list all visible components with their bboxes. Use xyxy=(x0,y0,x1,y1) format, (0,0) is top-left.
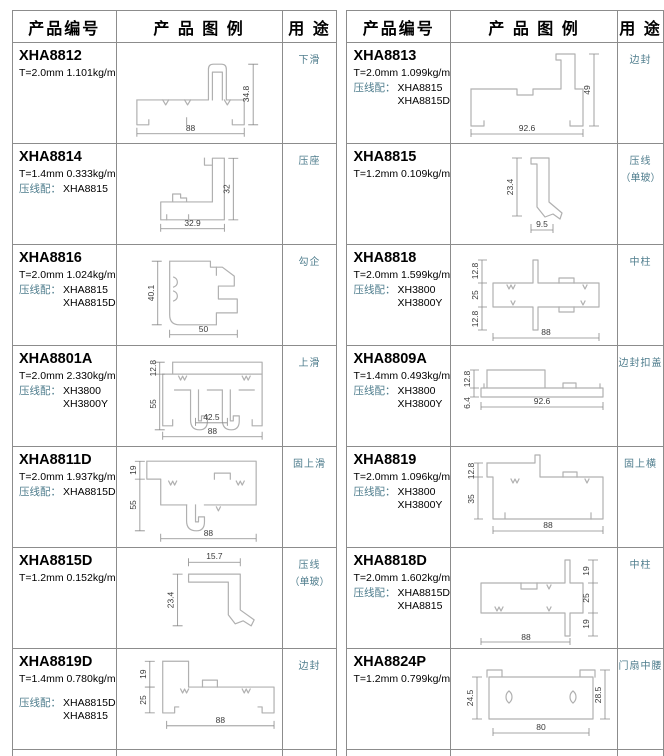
profile-outline xyxy=(471,54,583,126)
product-info-cell: XHA8801A T=2.0mm 2.330kg/m 压线配： XH3800XH… xyxy=(13,346,117,447)
catalog-sheet: 产品编号 产 品 图 例 用 途 XHA8812 T=2.0mm 1.101kg… xyxy=(0,0,664,756)
dim-height: 40.1 xyxy=(145,284,155,301)
figure-cell: 12.8 35 88 xyxy=(451,447,618,548)
dim-d2: 55 xyxy=(127,500,137,510)
product-row: XHA8813 T=2.0mm 1.099kg/m 压线配： XHA8815XH… xyxy=(347,43,664,144)
use-text-2: （单玻） xyxy=(618,169,663,184)
figure-cell: 88 34.8 xyxy=(116,43,282,144)
match-label: 压线配： xyxy=(19,697,61,724)
product-row: XHA8816 T=2.0mm 1.024kg/m 压线配： XHA8815XH… xyxy=(13,245,337,346)
figure-cell: 32 32.9 xyxy=(116,144,282,245)
dim-d2: 6.4 xyxy=(462,397,472,409)
dim-width: 88 xyxy=(185,123,195,133)
product-spec: T=2.0mm 1.602kg/m xyxy=(347,570,450,584)
profile-drawing: 12.8 35 88 xyxy=(451,447,616,546)
match-info xyxy=(13,79,116,82)
use-text: 压座 xyxy=(283,144,337,169)
match-code-2: XHA8815D xyxy=(397,95,450,109)
dim-d2: 25 xyxy=(581,593,591,603)
match-code-1: XHA8815 xyxy=(63,284,116,298)
profile-detail xyxy=(168,481,244,531)
match-code-2: XH3800Y xyxy=(397,297,442,311)
product-spec: T=2.0mm 1.099kg/m xyxy=(347,65,450,79)
match-info: 压线配： XH3800XH3800Y xyxy=(347,483,450,513)
match-label: 压线配： xyxy=(353,385,395,412)
next-row-stub xyxy=(13,750,337,756)
product-spec: T=2.0mm 2.330kg/m xyxy=(13,368,116,382)
dim-d2: 28.5 xyxy=(593,686,603,703)
match-info xyxy=(347,180,450,183)
product-code: XHA8813 xyxy=(347,43,450,65)
figure-cell: 23.4 9.5 xyxy=(451,144,618,245)
figure-cell: 92.6 49 xyxy=(451,43,618,144)
product-row: XHA8819D T=1.4mm 0.780kg/m 压线配： XHA8815D… xyxy=(13,649,337,750)
match-info: 压线配： XHA8815XHA8815D xyxy=(347,79,450,109)
product-info-cell: XHA8824P T=1.2mm 0.799kg/m xyxy=(347,649,451,750)
match-info: 压线配： XHA8815DXHA8815 xyxy=(13,685,116,724)
product-info-cell: XHA8815 T=1.2mm 0.109kg/m xyxy=(347,144,451,245)
use-text: 压线 xyxy=(283,548,337,573)
match-code-1: XHA8815D xyxy=(63,697,116,711)
dim-d2: 23.4 xyxy=(165,591,175,608)
dimension-line xyxy=(470,388,479,397)
profile-drawing: 15.7 23.4 xyxy=(117,548,281,647)
use-cell: 中柱 xyxy=(618,245,664,346)
match-info: 压线配： XH3800XH3800Y xyxy=(347,281,450,311)
use-cell: 边封 xyxy=(618,43,664,144)
profile-drawing: 19 25 19 88 xyxy=(451,548,616,647)
match-info: 压线配： XH3800XH3800Y xyxy=(347,382,450,412)
use-cell: 边封扣盖 xyxy=(618,346,664,447)
profile-outline xyxy=(493,260,599,330)
product-info-cell: XHA8819 T=2.0mm 1.096kg/m 压线配： XH3800XH3… xyxy=(347,447,451,548)
dim-height: 34.8 xyxy=(241,85,251,102)
product-spec: T=1.4mm 0.333kg/m xyxy=(13,166,116,180)
profile-detail xyxy=(484,383,600,388)
match-code-1: XH3800 xyxy=(63,385,108,399)
column-header-code: 产品编号 xyxy=(347,11,451,43)
header-row: 产品编号 产 品 图 例 用 途 xyxy=(347,11,664,43)
use-cell: 边封 xyxy=(282,649,337,750)
product-info-cell: XHA8813 T=2.0mm 1.099kg/m 压线配： XHA8815XH… xyxy=(347,43,451,144)
use-text: 中柱 xyxy=(618,245,663,270)
product-row: XHA8818D T=2.0mm 1.602kg/m 压线配： XHA8815D… xyxy=(347,548,664,649)
dim-width: 88 xyxy=(203,528,213,538)
use-cell: 勾企 xyxy=(282,245,337,346)
column-header-code: 产品编号 xyxy=(13,11,117,43)
match-code-1: XHA8815D xyxy=(397,587,450,601)
match-code-2: XH3800Y xyxy=(397,499,442,513)
use-cell: 压线 （单玻） xyxy=(282,548,337,649)
product-row: XHA8824P T=1.2mm 0.799kg/m 24.5 28.5 80 xyxy=(347,649,664,750)
use-cell: 下滑 xyxy=(282,43,337,144)
dim-width: 80 xyxy=(536,722,546,732)
match-info: 压线配： XHA8815D xyxy=(13,483,116,500)
dim-height: 32 xyxy=(221,184,231,194)
product-info-cell: XHA8818D T=2.0mm 1.602kg/m 压线配： XHA8815D… xyxy=(347,548,451,649)
match-label: 压线配： xyxy=(19,284,61,311)
product-code: XHA8816 xyxy=(13,245,116,267)
figure-cell: 19 25 88 xyxy=(116,649,282,750)
dim-d3: 12.8 xyxy=(470,310,480,327)
use-cell: 中柱 xyxy=(618,548,664,649)
figure-cell: 12.8 55 42.5 88 xyxy=(116,346,282,447)
profile-outline xyxy=(481,370,603,397)
product-code: XHA8809A xyxy=(347,346,450,368)
use-cell: 固上横 xyxy=(618,447,664,548)
product-row: XHA8818 T=2.0mm 1.599kg/m 压线配： XH3800XH3… xyxy=(347,245,664,346)
dim-d1: 23.4 xyxy=(505,178,515,195)
product-info-cell: XHA8815D T=1.2mm 0.152kg/m xyxy=(13,548,117,649)
dim-height: 49 xyxy=(582,85,592,95)
use-text: 中柱 xyxy=(618,548,663,573)
profile-outline xyxy=(487,455,603,519)
match-label: 压线配： xyxy=(19,183,61,197)
dim-d1: 12.8 xyxy=(466,462,476,479)
use-text: 勾企 xyxy=(283,245,337,270)
match-code-1: XH3800 xyxy=(397,284,442,298)
product-spec: T=1.2mm 0.109kg/m xyxy=(347,166,450,180)
next-row-stub xyxy=(347,750,664,756)
column-header-figure: 产 品 图 例 xyxy=(116,11,282,43)
match-code-1: XH3800 xyxy=(397,486,442,500)
dim-d1: 12.8 xyxy=(470,262,480,279)
dim-width: 92.6 xyxy=(534,396,551,406)
match-code-2: XHA8815 xyxy=(397,600,450,614)
match-label: 压线配： xyxy=(19,385,61,412)
product-row: XHA8809A T=1.4mm 0.493kg/m 压线配： XH3800XH… xyxy=(347,346,664,447)
dim-d3: 42.5 xyxy=(203,412,220,422)
product-code: XHA8814 xyxy=(13,144,116,166)
use-text-2: （单玻） xyxy=(283,573,337,588)
dim-width: 88 xyxy=(541,327,551,337)
dim-width: 88 xyxy=(207,426,217,436)
profile-drawing: 23.4 9.5 xyxy=(451,144,616,243)
left-product-table: 产品编号 产 品 图 例 用 途 XHA8812 T=2.0mm 1.101kg… xyxy=(12,10,337,756)
use-text: 边封扣盖 xyxy=(618,346,663,371)
profile-detail xyxy=(506,691,576,703)
use-text: 门扇中腰 xyxy=(618,649,663,674)
match-info: 压线配： XH3800XH3800Y xyxy=(13,382,116,412)
use-text: 固上滑 xyxy=(283,447,337,472)
profile-detail xyxy=(495,583,551,611)
product-spec: T=1.4mm 0.493kg/m xyxy=(347,368,450,382)
profile-drawing: 32 32.9 xyxy=(117,144,281,243)
profile-drawing: 12.8 55 42.5 88 xyxy=(117,346,281,445)
match-code-2: XH3800Y xyxy=(397,398,442,412)
figure-cell: 15.7 23.4 xyxy=(116,548,282,649)
product-spec: T=2.0mm 1.024kg/m xyxy=(13,267,116,281)
use-text: 边封 xyxy=(618,43,663,68)
use-cell: 上滑 xyxy=(282,346,337,447)
use-cell: 固上滑 xyxy=(282,447,337,548)
match-label: 压线配： xyxy=(353,587,395,614)
dim-width: 32.9 xyxy=(184,218,201,228)
profile-drawing: 92.6 49 xyxy=(451,43,616,142)
dim-width: 88 xyxy=(543,520,553,530)
use-cell: 压线 （单玻） xyxy=(618,144,664,245)
match-info: 压线配： XHA8815XHA8815D xyxy=(13,281,116,311)
match-code-2: XH3800Y xyxy=(63,398,108,412)
dim-d1: 12.8 xyxy=(462,370,472,387)
right-product-table: 产品编号 产 品 图 例 用 途 XHA8813 T=2.0mm 1.099kg… xyxy=(346,10,664,756)
column-header-use: 用 途 xyxy=(282,11,337,43)
profile-detail xyxy=(511,472,591,519)
product-code: XHA8801A xyxy=(13,346,116,368)
dim-d2: 25 xyxy=(137,695,147,705)
dim-d1: 19 xyxy=(127,465,137,475)
product-spec: T=2.0mm 1.101kg/m xyxy=(13,65,116,79)
product-spec: T=1.4mm 0.780kg/m xyxy=(13,671,116,685)
figure-cell: 12.8 6.4 92.6 xyxy=(451,346,618,447)
profile-outline xyxy=(481,560,583,636)
use-cell: 压座 xyxy=(282,144,337,245)
use-cell: 门扇中腰 xyxy=(618,649,664,750)
product-info-cell: XHA8819D T=1.4mm 0.780kg/m 压线配： XHA8815D… xyxy=(13,649,117,750)
product-row: XHA8801A T=2.0mm 2.330kg/m 压线配： XH3800XH… xyxy=(13,346,337,447)
match-info xyxy=(347,685,450,688)
match-label: 压线配： xyxy=(353,82,395,109)
match-code-2: XHA8815D xyxy=(63,297,116,311)
profile-detail xyxy=(166,158,212,220)
dim-d2: 25 xyxy=(470,290,480,300)
dim-width: 88 xyxy=(521,632,531,642)
product-info-cell: XHA8814 T=1.4mm 0.333kg/m 压线配： XHA8815 xyxy=(13,144,117,245)
product-row: XHA8815 T=1.2mm 0.109kg/m 23.4 9.5 压线 xyxy=(347,144,664,245)
product-code: XHA8815 xyxy=(347,144,450,166)
dim-width: 88 xyxy=(215,715,225,725)
product-info-cell: XHA8812 T=2.0mm 1.101kg/m xyxy=(13,43,117,144)
profile-drawing: 12.8 25 12.8 88 xyxy=(451,245,616,344)
product-code: XHA8818D xyxy=(347,548,450,570)
match-code-2: XHA8815 xyxy=(63,710,116,724)
dim-d2: 35 xyxy=(466,494,476,504)
product-row: XHA8812 T=2.0mm 1.101kg/m 88 34.8 xyxy=(13,43,337,144)
product-info-cell: XHA8816 T=2.0mm 1.024kg/m 压线配： XHA8815XH… xyxy=(13,245,117,346)
profile-drawing: 24.5 28.5 80 xyxy=(451,649,616,748)
product-code: XHA8819 xyxy=(347,447,450,469)
product-code: XHA8815D xyxy=(13,548,116,570)
product-code: XHA8818 xyxy=(347,245,450,267)
product-spec: T=2.0mm 1.096kg/m xyxy=(347,469,450,483)
dim-d1: 12.8 xyxy=(147,360,157,377)
profile-drawing: 19 25 88 xyxy=(117,649,281,748)
match-label: 压线配： xyxy=(353,486,395,513)
product-spec: T=2.0mm 1.937kg/m xyxy=(13,469,116,483)
dim-width: 50 xyxy=(198,324,208,334)
use-text: 下滑 xyxy=(283,43,337,68)
use-text: 固上横 xyxy=(618,447,663,472)
match-info xyxy=(13,584,116,587)
match-info: 压线配： XHA8815DXHA8815 xyxy=(347,584,450,614)
product-row: XHA8819 T=2.0mm 1.096kg/m 压线配： XH3800XH3… xyxy=(347,447,664,548)
product-info-cell: XHA8809A T=1.4mm 0.493kg/m 压线配： XH3800XH… xyxy=(347,346,451,447)
column-header-figure: 产 品 图 例 xyxy=(451,11,618,43)
product-code: XHA8812 xyxy=(13,43,116,65)
profile-drawing: 19 55 88 xyxy=(117,447,281,546)
profile-drawing: 88 34.8 xyxy=(117,43,281,142)
dim-d1: 19 xyxy=(137,669,147,679)
product-code: XHA8811D xyxy=(13,447,116,469)
dim-d2: 9.5 xyxy=(536,219,548,229)
match-code-1: XHA8815 xyxy=(397,82,450,96)
dim-width: 92.6 xyxy=(519,123,536,133)
figure-cell: 12.8 25 12.8 88 xyxy=(451,245,618,346)
profile-outline xyxy=(160,158,224,220)
profile-outline xyxy=(162,661,273,713)
profile-detail xyxy=(173,267,216,301)
figure-cell: 19 25 19 88 xyxy=(451,548,618,649)
use-text: 上滑 xyxy=(283,346,337,371)
match-code-1: XH3800 xyxy=(397,385,442,399)
use-text: 边封 xyxy=(283,649,337,674)
product-code: XHA8819D xyxy=(13,649,116,671)
column-header-use: 用 途 xyxy=(618,11,664,43)
profile-drawing: 12.8 6.4 92.6 xyxy=(451,346,616,445)
dim-d1: 24.5 xyxy=(465,689,475,706)
product-info-cell: XHA8818 T=2.0mm 1.599kg/m 压线配： XH3800XH3… xyxy=(347,245,451,346)
figure-cell: 40.1 50 xyxy=(116,245,282,346)
match-label: 压线配： xyxy=(19,486,61,500)
dim-d1: 15.7 xyxy=(206,551,223,561)
profile-outline xyxy=(531,158,562,219)
figure-cell: 24.5 28.5 80 xyxy=(451,649,618,750)
product-row: XHA8814 T=1.4mm 0.333kg/m 压线配： XHA8815 3… xyxy=(13,144,337,245)
use-text: 压线 xyxy=(618,144,663,169)
match-code-1: XHA8815D xyxy=(63,486,116,500)
product-info-cell: XHA8811D T=2.0mm 1.937kg/m 压线配： XHA8815D xyxy=(13,447,117,548)
match-info: 压线配： XHA8815 xyxy=(13,180,116,197)
profile-outline xyxy=(169,261,237,325)
product-row: XHA8811D T=2.0mm 1.937kg/m 压线配： XHA8815D… xyxy=(13,447,337,548)
dim-d1: 19 xyxy=(581,566,591,576)
dim-d3: 19 xyxy=(581,619,591,629)
product-spec: T=2.0mm 1.599kg/m xyxy=(347,267,450,281)
dim-d2: 55 xyxy=(147,399,157,409)
profile-outline xyxy=(136,64,243,125)
product-row: XHA8815D T=1.2mm 0.152kg/m 15.7 23.4 压线 xyxy=(13,548,337,649)
product-spec: T=1.2mm 0.799kg/m xyxy=(347,671,450,685)
profile-outline xyxy=(487,670,595,719)
profile-outline xyxy=(188,574,254,626)
figure-cell: 19 55 88 xyxy=(116,447,282,548)
match-label: 压线配： xyxy=(353,284,395,311)
profile-drawing: 40.1 50 xyxy=(117,245,281,344)
product-code: XHA8824P xyxy=(347,649,450,671)
header-row: 产品编号 产 品 图 例 用 途 xyxy=(13,11,337,43)
match-code-1: XHA8815 xyxy=(63,183,108,197)
product-spec: T=1.2mm 0.152kg/m xyxy=(13,570,116,584)
